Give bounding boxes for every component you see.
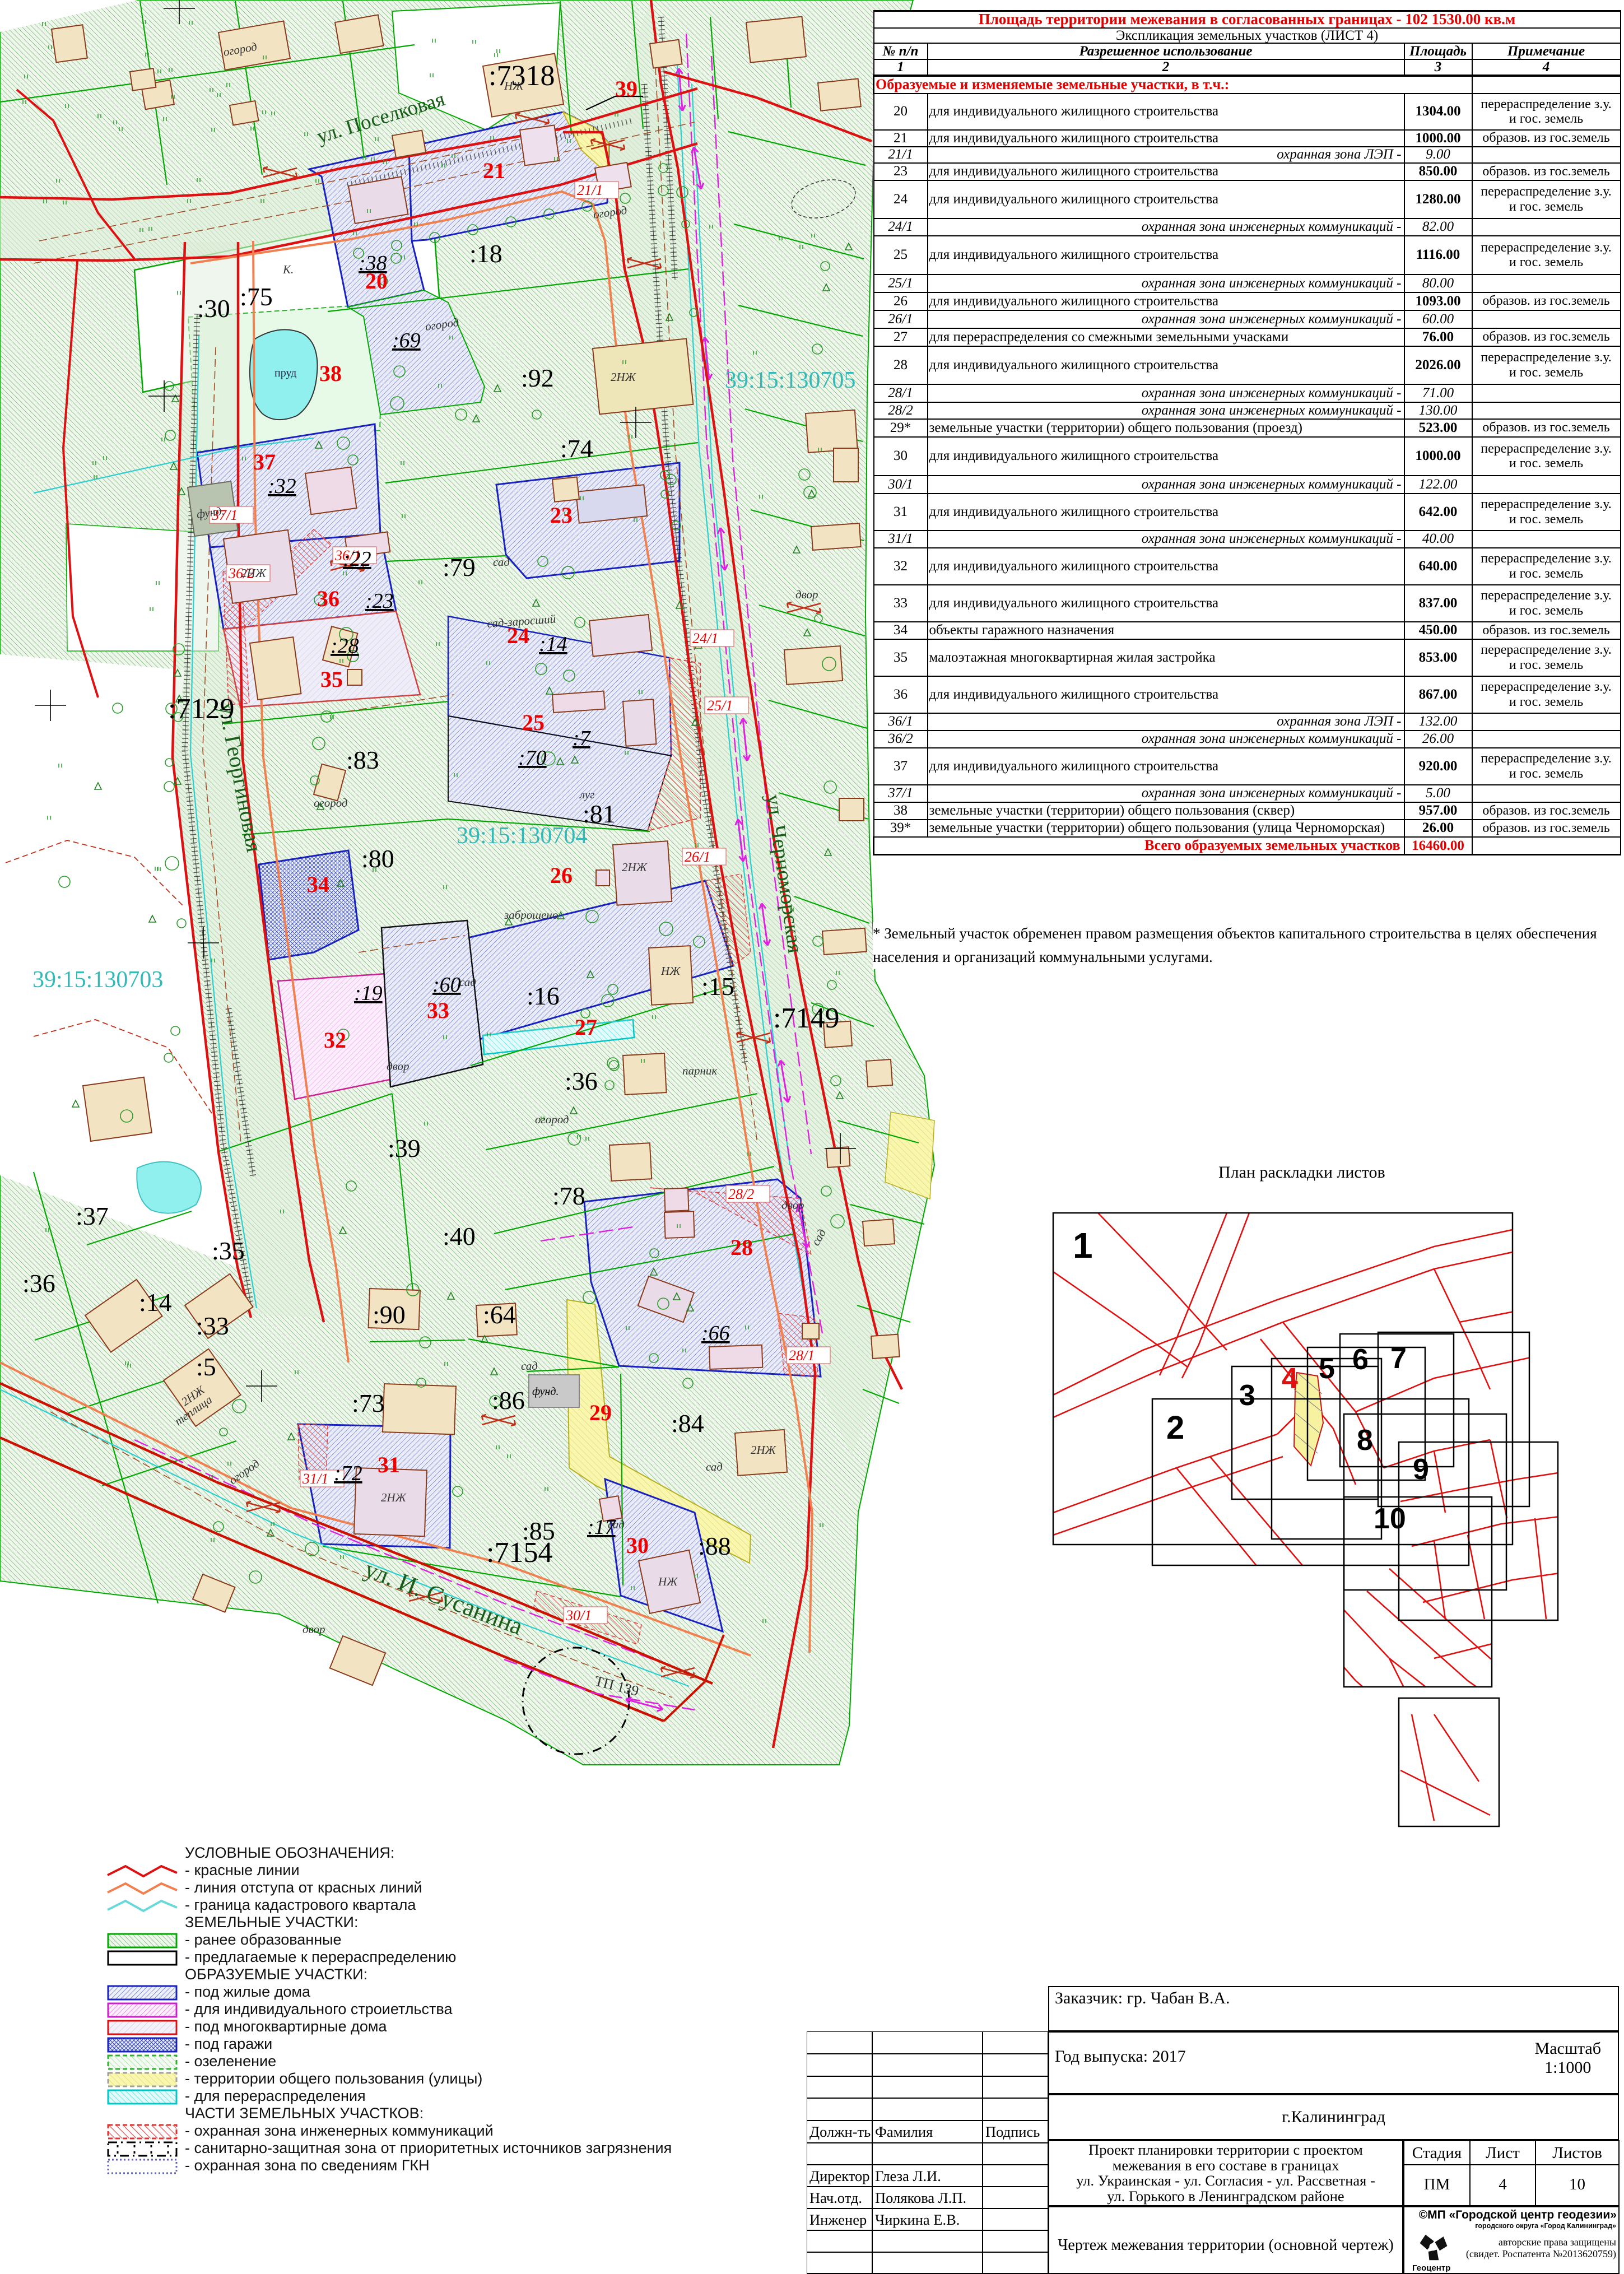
svg-text:39:15:130703: 39:15:130703: [32, 967, 163, 993]
svg-text::28: :28: [331, 634, 359, 658]
svg-text::7154: :7154: [486, 1537, 552, 1569]
svg-text:37: 37: [253, 449, 276, 475]
svg-text:39:15:130705: 39:15:130705: [725, 368, 855, 393]
svg-text:29: 29: [589, 1400, 612, 1425]
svg-text::30: :30: [197, 294, 230, 323]
svg-text:Подпись: Подпись: [985, 2123, 1040, 2140]
svg-text::92: :92: [521, 364, 554, 392]
svg-text::23: :23: [365, 589, 394, 613]
svg-text:38: 38: [319, 361, 342, 386]
svg-text::35: :35: [212, 1236, 245, 1265]
svg-text::39: :39: [388, 1134, 421, 1162]
svg-text:сад: сад: [493, 555, 510, 569]
svg-text:31: 31: [378, 1452, 400, 1477]
svg-text::36: :36: [565, 1067, 598, 1095]
svg-text:Директор: Директор: [809, 2168, 870, 2184]
svg-text::7149: :7149: [773, 1002, 839, 1034]
svg-text:сад: сад: [459, 975, 476, 989]
svg-text:План раскладки листов: План раскладки листов: [1218, 1163, 1385, 1182]
svg-text::16: :16: [527, 982, 560, 1010]
svg-text::70: :70: [518, 746, 547, 770]
svg-text::19: :19: [354, 982, 383, 1005]
svg-text:39: 39: [615, 76, 637, 101]
svg-text:3: 3: [1239, 1379, 1255, 1412]
svg-text:фунд.: фунд.: [532, 1385, 559, 1398]
svg-text:6: 6: [1352, 1343, 1369, 1376]
svg-text::7: :7: [573, 727, 592, 750]
svg-text:двор: двор: [303, 1622, 325, 1636]
svg-text:сад: сад: [706, 1460, 723, 1473]
svg-text:Нач.отд.: Нач.отд.: [809, 2189, 862, 2206]
svg-text:луг: луг: [579, 788, 594, 801]
svg-text:сад: сад: [521, 1359, 538, 1373]
svg-text:Глеза Л.И.: Глеза Л.И.: [875, 2168, 941, 2184]
svg-text:двор: двор: [387, 1059, 409, 1073]
svg-text:2НЖ: 2НЖ: [622, 861, 648, 874]
svg-text::36: :36: [22, 1269, 55, 1298]
svg-text:двор: двор: [781, 1198, 804, 1212]
svg-text::80: :80: [361, 844, 394, 873]
svg-text:огород: огород: [314, 796, 348, 810]
svg-text:5: 5: [1319, 1352, 1335, 1385]
svg-text:двор: двор: [795, 588, 818, 601]
svg-text:2НЖ: 2НЖ: [241, 566, 267, 580]
svg-text:огород: огород: [535, 1113, 569, 1126]
svg-text::37: :37: [76, 1202, 109, 1230]
svg-text:21: 21: [483, 158, 505, 183]
svg-text:32: 32: [324, 1027, 346, 1053]
svg-text::79: :79: [443, 553, 476, 582]
svg-text:Полякова Л.П.: Полякова Л.П.: [875, 2189, 966, 2206]
svg-text::66: :66: [701, 1322, 730, 1345]
svg-text:сад: сад: [608, 1518, 625, 1531]
svg-text::86: :86: [492, 1386, 525, 1415]
svg-text::69: :69: [392, 329, 421, 352]
svg-text:27: 27: [575, 1015, 597, 1040]
svg-text::38: :38: [359, 252, 387, 275]
svg-text:36: 36: [317, 586, 339, 611]
svg-text:35: 35: [320, 667, 343, 692]
svg-text:2НЖ: 2НЖ: [381, 1491, 407, 1504]
svg-text::72: :72: [334, 1462, 362, 1485]
svg-text:28: 28: [730, 1235, 753, 1260]
svg-text:31/1: 31/1: [302, 1471, 328, 1487]
svg-text:26/1: 26/1: [685, 849, 710, 865]
svg-text::84: :84: [671, 1409, 704, 1438]
svg-text::78: :78: [552, 1182, 585, 1210]
svg-text:33: 33: [427, 998, 449, 1023]
svg-text::5: :5: [196, 1352, 216, 1381]
svg-text::81: :81: [583, 799, 616, 828]
svg-text:30: 30: [626, 1533, 649, 1558]
svg-text:28/2: 28/2: [728, 1186, 754, 1202]
svg-text:23: 23: [550, 503, 573, 528]
svg-text::7129: :7129: [168, 693, 234, 725]
svg-text::60: :60: [432, 973, 461, 997]
svg-text:НЖ: НЖ: [658, 1575, 678, 1588]
svg-text:парник: парник: [682, 1064, 717, 1077]
svg-text:Чиркина Е.В.: Чиркина Е.В.: [875, 2211, 960, 2228]
svg-text::73: :73: [352, 1389, 385, 1417]
svg-text::33: :33: [196, 1312, 229, 1340]
svg-text::32: :32: [268, 475, 296, 498]
svg-text:2НЖ: 2НЖ: [751, 1443, 776, 1457]
svg-text::88: :88: [698, 1532, 731, 1560]
svg-text:39:15:130704: 39:15:130704: [457, 823, 587, 849]
svg-text:9: 9: [1413, 1453, 1429, 1486]
svg-text:НЖ: НЖ: [660, 964, 681, 978]
svg-text:К.: К.: [282, 263, 294, 276]
svg-text:25/1: 25/1: [707, 697, 733, 714]
svg-text:4: 4: [1282, 1362, 1298, 1395]
svg-text::90: :90: [373, 1300, 406, 1329]
svg-text::74: :74: [560, 434, 593, 463]
svg-text:Фамилия: Фамилия: [875, 2123, 933, 2140]
svg-text::14: :14: [539, 633, 567, 656]
svg-text:8: 8: [1357, 1424, 1373, 1457]
svg-text:10: 10: [1374, 1503, 1406, 1535]
svg-text::22: :22: [343, 547, 371, 571]
svg-text::75: :75: [240, 282, 273, 311]
svg-text:24/1: 24/1: [692, 630, 718, 647]
svg-text::40: :40: [443, 1222, 476, 1250]
svg-text:пруд: пруд: [274, 367, 296, 379]
svg-text:Должн-ть: Должн-ть: [809, 2123, 871, 2140]
svg-text:34: 34: [307, 872, 329, 897]
svg-text:Инженер: Инженер: [809, 2211, 867, 2228]
svg-text:28/1: 28/1: [789, 1347, 815, 1364]
svg-text::83: :83: [346, 746, 379, 774]
svg-text:2: 2: [1166, 1410, 1184, 1446]
svg-text::14: :14: [139, 1288, 172, 1317]
svg-text::15: :15: [701, 972, 734, 1001]
svg-text:1: 1: [1073, 1225, 1093, 1266]
svg-text:2НЖ: 2НЖ: [611, 370, 636, 384]
svg-text::18: :18: [469, 239, 502, 268]
svg-text:30/1: 30/1: [565, 1607, 592, 1624]
svg-text::64: :64: [483, 1300, 516, 1329]
svg-text:25: 25: [522, 710, 545, 735]
svg-text:НЖ: НЖ: [504, 79, 524, 92]
svg-text:заброшено: заброшено: [504, 908, 558, 922]
svg-text:7: 7: [1390, 1342, 1407, 1375]
svg-text:26: 26: [550, 863, 573, 888]
svg-text:21/1: 21/1: [577, 182, 603, 198]
